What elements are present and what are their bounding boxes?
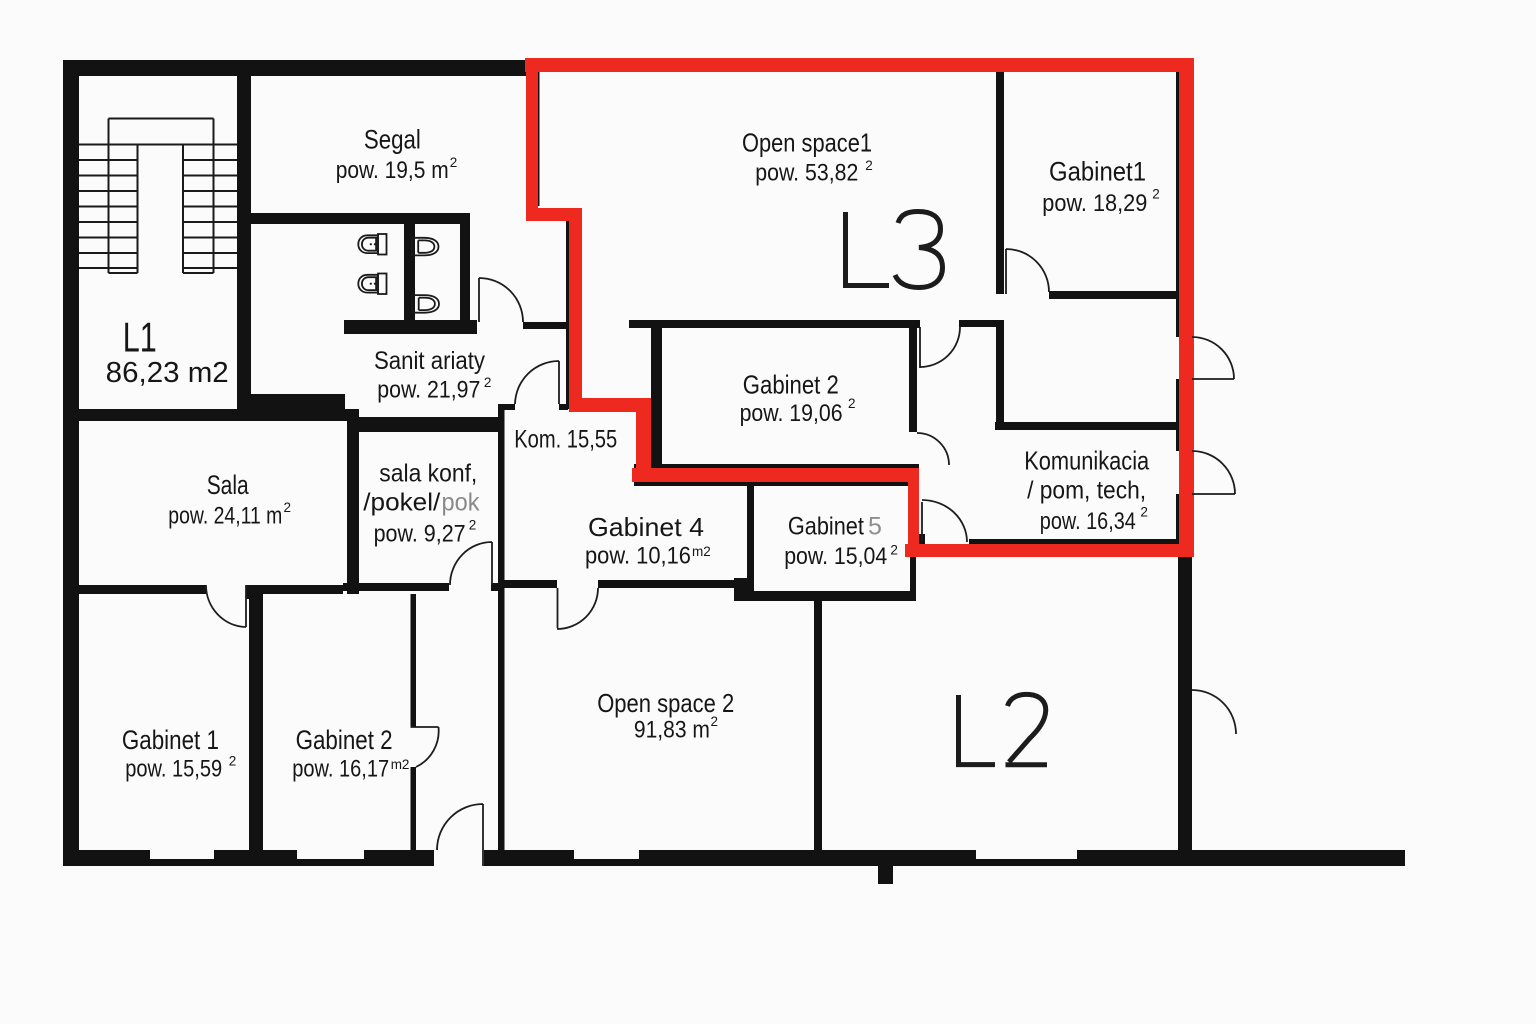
svg-text:2: 2 xyxy=(711,714,719,729)
svg-text:Sanit ariaty: Sanit ariaty xyxy=(374,347,485,375)
svg-text:Gabinet1: Gabinet1 xyxy=(1049,156,1146,186)
svg-text:Gabinet 2: Gabinet 2 xyxy=(296,725,393,755)
svg-text:m2: m2 xyxy=(692,544,711,559)
svg-text:Gabinet 2: Gabinet 2 xyxy=(743,369,839,399)
svg-text:2: 2 xyxy=(484,375,492,390)
svg-text:pok: pok xyxy=(442,489,480,517)
svg-text:sala konf,: sala konf, xyxy=(379,460,477,488)
svg-text:2: 2 xyxy=(469,518,477,533)
svg-text:2: 2 xyxy=(1140,505,1148,520)
svg-text:2: 2 xyxy=(229,753,237,768)
svg-text:5: 5 xyxy=(868,513,882,541)
svg-text:L1: L1 xyxy=(123,313,157,360)
svg-text:pow. 15,59: pow. 15,59 xyxy=(125,756,222,783)
svg-text:pow. 18,29: pow. 18,29 xyxy=(1042,190,1147,217)
svg-text:pow. 19,06: pow. 19,06 xyxy=(740,400,843,427)
svg-text:Open space1: Open space1 xyxy=(742,128,872,158)
svg-text:Gabinet 4: Gabinet 4 xyxy=(588,512,704,542)
svg-text:Gabinet: Gabinet xyxy=(788,513,864,541)
svg-text:pow. 16,17: pow. 16,17 xyxy=(292,756,389,783)
svg-text:2: 2 xyxy=(450,155,458,170)
svg-text:2: 2 xyxy=(284,500,292,515)
svg-text:Komunikacia: Komunikacia xyxy=(1024,446,1149,476)
svg-text:91,83 m: 91,83 m xyxy=(634,717,710,744)
svg-text:Kom. 15,55: Kom. 15,55 xyxy=(514,426,617,454)
svg-text:pow. 21,97: pow. 21,97 xyxy=(377,377,480,404)
svg-text:m2: m2 xyxy=(391,757,410,772)
svg-text:2: 2 xyxy=(890,542,898,557)
svg-text:pow. 10,16: pow. 10,16 xyxy=(585,543,691,570)
svg-text:Gabinet 1: Gabinet 1 xyxy=(122,725,219,755)
svg-text:86,23 m2: 86,23 m2 xyxy=(106,357,229,389)
svg-text:2: 2 xyxy=(865,158,873,173)
svg-text:2: 2 xyxy=(848,396,856,411)
svg-text:pow. 9,27: pow. 9,27 xyxy=(374,521,466,548)
svg-text:pow. 15,04: pow. 15,04 xyxy=(784,543,887,570)
svg-text:Segal: Segal xyxy=(364,125,421,155)
svg-text:pow. 24,11 m: pow. 24,11 m xyxy=(168,503,282,530)
svg-text:pow. 19,5 m: pow. 19,5 m xyxy=(336,157,449,184)
svg-text:pow. 53,82: pow. 53,82 xyxy=(755,160,858,187)
svg-text:/ pom, tech,: / pom, tech, xyxy=(1027,477,1146,505)
svg-text:/pokel/: /pokel/ xyxy=(363,489,440,517)
svg-text:2: 2 xyxy=(1152,186,1160,201)
svg-text:Sala: Sala xyxy=(207,470,250,500)
svg-text:pow. 16,34: pow. 16,34 xyxy=(1040,508,1136,535)
